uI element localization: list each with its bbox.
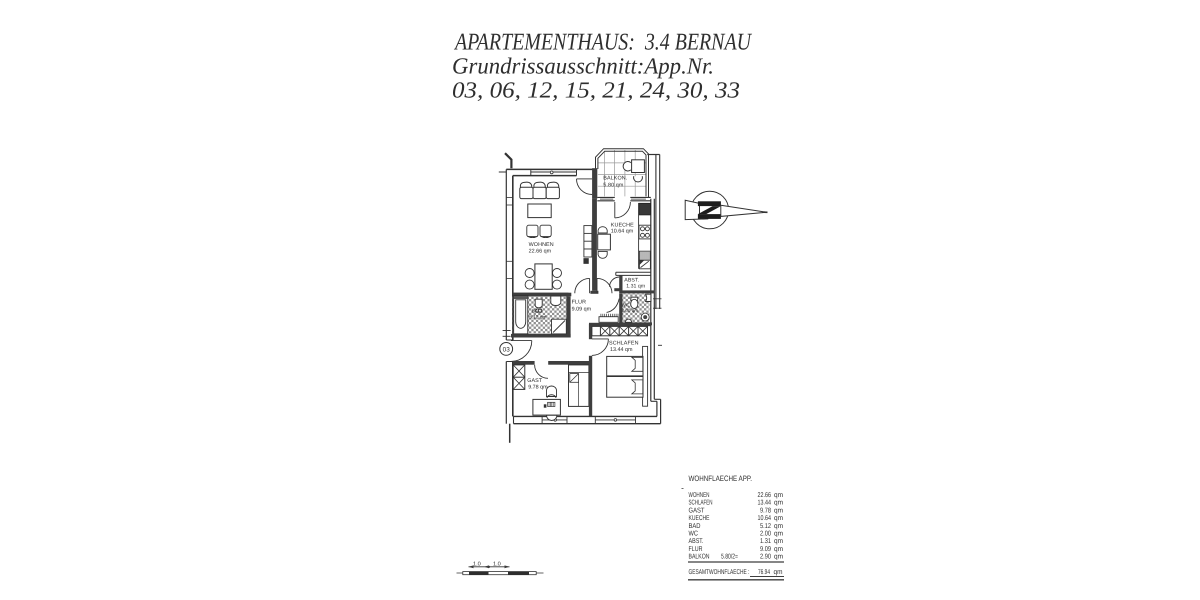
svg-text:KUECHE: KUECHE [611, 222, 634, 228]
svg-text:qm: qm [774, 531, 783, 538]
svg-text:WC: WC [689, 531, 699, 538]
svg-text:KUECHE: KUECHE [689, 515, 710, 522]
svg-text:22.66: 22.66 [758, 492, 772, 499]
svg-text:5.12: 5.12 [760, 523, 771, 530]
svg-text:2.00: 2.00 [760, 531, 771, 538]
svg-text:1.0: 1.0 [493, 561, 501, 567]
svg-text:9.09: 9.09 [760, 546, 771, 553]
svg-text:qm: qm [774, 500, 783, 507]
svg-text:FLUR: FLUR [689, 546, 703, 553]
svg-text:03, 06, 12, 15, 21, 24, 30, 33: 03, 06, 12, 15, 21, 24, 30, 33 [452, 78, 740, 103]
svg-text:WOHNEN: WOHNEN [529, 242, 554, 248]
svg-text:FLUR: FLUR [572, 300, 586, 306]
svg-text:1.0: 1.0 [473, 561, 481, 567]
svg-text:qm: qm [774, 523, 783, 530]
svg-text:GAST: GAST [689, 507, 706, 514]
svg-text:GAST: GAST [527, 378, 543, 384]
svg-text:22.66 qm: 22.66 qm [529, 248, 552, 254]
svg-text:SCHLAFEN: SCHLAFEN [689, 500, 713, 507]
svg-text:APARTEMENTHAUS: 3.4 BERNAU: APARTEMENTHAUS: 3.4 BERNAU [453, 30, 752, 56]
svg-text:9.09 qm: 9.09 qm [572, 306, 592, 312]
svg-text:76.94: 76.94 [758, 569, 770, 576]
svg-text:ABST.: ABST. [689, 538, 704, 545]
svg-text:SCHLAFEN: SCHLAFEN [609, 340, 639, 346]
svg-text:2.00 qm: 2.00 qm [622, 308, 639, 313]
svg-text:qm: qm [774, 554, 783, 561]
svg-text:qm: qm [774, 492, 783, 499]
svg-text:9.78 qm: 9.78 qm [528, 384, 548, 390]
svg-text:03: 03 [503, 346, 511, 353]
svg-text:Grundrissausschnitt:App.Nr.: Grundrissausschnitt:App.Nr. [452, 54, 714, 79]
svg-text:1.31: 1.31 [760, 538, 771, 545]
svg-text:ABST.: ABST. [624, 277, 639, 283]
svg-text:10.64: 10.64 [758, 515, 772, 522]
svg-text:qm: qm [774, 569, 783, 576]
svg-text:BAD: BAD [532, 308, 542, 314]
svg-text:5.80 qm: 5.80 qm [603, 182, 624, 188]
svg-text:BALKON.: BALKON. [603, 176, 627, 182]
svg-text:WOHNFLAECHE APP.: WOHNFLAECHE APP. [689, 474, 753, 483]
svg-text:5.12 qm: 5.12 qm [529, 314, 546, 320]
svg-text:qm: qm [774, 546, 783, 553]
svg-text:5.80/2=: 5.80/2= [721, 553, 738, 561]
svg-text:qm: qm [774, 515, 783, 522]
svg-text:WC: WC [622, 302, 630, 307]
svg-text:GESAMTWOHNFLAECHE :: GESAMTWOHNFLAECHE : [689, 569, 750, 576]
svg-text:9.78: 9.78 [760, 507, 771, 514]
svg-text:WOHNEN: WOHNEN [689, 492, 710, 499]
svg-text:qm: qm [774, 538, 783, 545]
svg-text:BAD: BAD [689, 523, 701, 530]
svg-text:10.64 qm: 10.64 qm [611, 229, 634, 235]
svg-text:qm: qm [774, 507, 783, 514]
svg-text:BALKON: BALKON [689, 554, 710, 561]
svg-text:13.44 qm: 13.44 qm [610, 347, 633, 353]
svg-text:13.44: 13.44 [758, 500, 772, 507]
svg-text:2.90: 2.90 [760, 554, 771, 561]
svg-text:1.31 qm: 1.31 qm [626, 284, 645, 290]
